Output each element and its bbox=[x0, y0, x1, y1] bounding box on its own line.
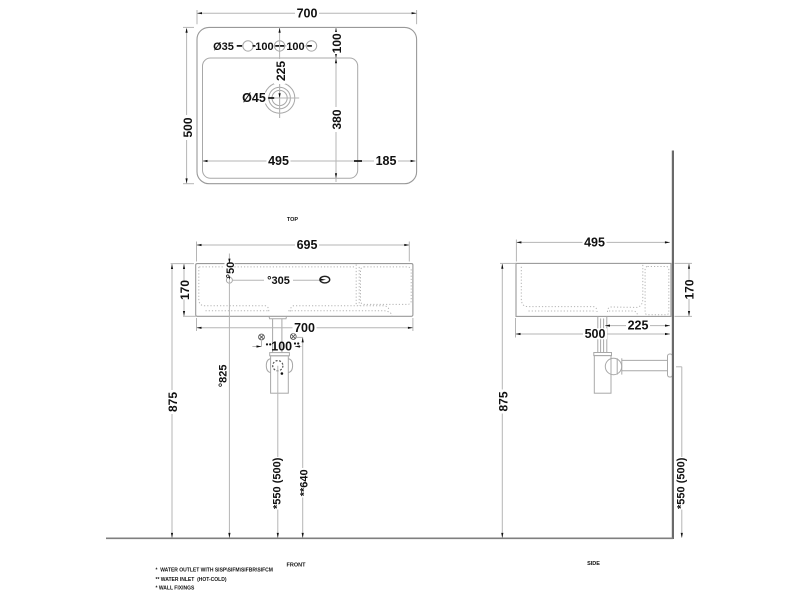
svg-text:FRONT: FRONT bbox=[287, 563, 307, 569]
svg-text:Ø45: Ø45 bbox=[242, 91, 266, 105]
svg-text:°50: °50 bbox=[225, 262, 237, 279]
svg-text:170: 170 bbox=[178, 280, 192, 300]
svg-text:°305: °305 bbox=[267, 275, 290, 287]
svg-text:100: 100 bbox=[286, 41, 304, 53]
svg-text:100: 100 bbox=[271, 340, 292, 354]
svg-text:500: 500 bbox=[181, 117, 195, 137]
svg-text:700: 700 bbox=[294, 321, 315, 335]
svg-text:* WATER OUTLET WITH SISP\SIFM: * WATER OUTLET WITH SISP\SIFM\SIFBR\SIFC… bbox=[156, 568, 273, 574]
svg-text:225: 225 bbox=[274, 61, 288, 81]
svg-text:700: 700 bbox=[297, 7, 318, 21]
svg-text:TOP: TOP bbox=[287, 217, 299, 223]
svg-text:SIDE: SIDE bbox=[587, 561, 600, 567]
svg-text:500: 500 bbox=[585, 327, 606, 341]
svg-text:*550 (500): *550 (500) bbox=[272, 457, 284, 509]
svg-text:Ø35: Ø35 bbox=[213, 41, 234, 53]
svg-text:**640: **640 bbox=[299, 469, 311, 496]
svg-text:185: 185 bbox=[376, 154, 397, 168]
svg-text:495: 495 bbox=[584, 235, 605, 249]
svg-text:170: 170 bbox=[682, 279, 696, 299]
svg-text:°825: °825 bbox=[217, 365, 229, 388]
svg-text:495: 495 bbox=[268, 154, 289, 168]
svg-text:** WATER INLET (HOT-COLD): ** WATER INLET (HOT-COLD) bbox=[156, 577, 227, 583]
svg-text:* WALL FIXINGS: * WALL FIXINGS bbox=[156, 586, 195, 592]
svg-text:875: 875 bbox=[166, 392, 180, 412]
svg-text:100: 100 bbox=[255, 41, 273, 53]
svg-text:*550 (500): *550 (500) bbox=[676, 457, 688, 509]
svg-text:225: 225 bbox=[628, 319, 649, 333]
svg-text:100: 100 bbox=[330, 33, 344, 53]
svg-text:695: 695 bbox=[297, 238, 318, 252]
svg-text:875: 875 bbox=[496, 391, 510, 411]
svg-text:380: 380 bbox=[330, 109, 344, 129]
